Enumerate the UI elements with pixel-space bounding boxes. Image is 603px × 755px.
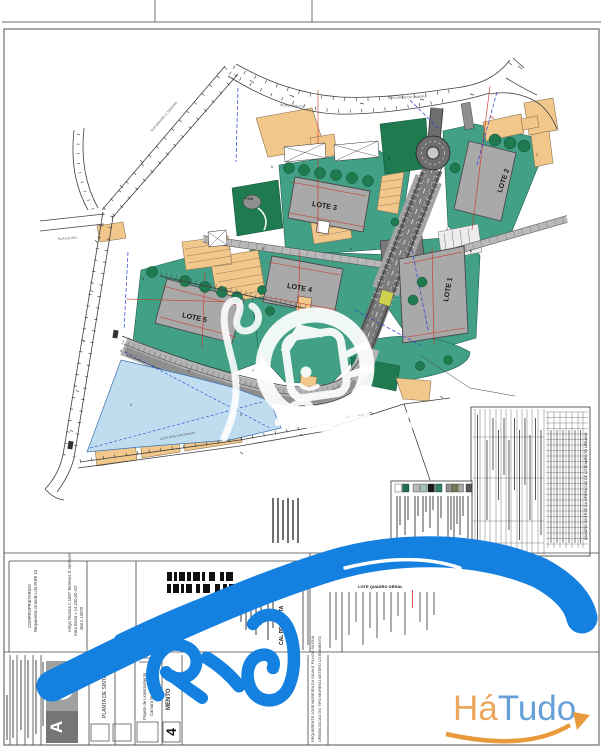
svg-text:2: 2 [130,403,132,407]
svg-text:6: 6 [188,369,190,373]
svg-text:Mat n 10970: Mat n 10970 [79,606,84,630]
svg-text:Area Bruta = 14.230,00 m2: Area Bruta = 14.230,00 m2 [73,585,78,636]
svg-text:4: 4 [120,349,122,353]
svg-text:MENTO: MENTO [166,688,172,710]
svg-text:PNB: PNB [245,196,254,201]
svg-text:8: 8 [470,249,472,253]
svg-text:5: 5 [271,165,273,169]
svg-text:7: 7 [252,369,254,373]
svg-text:3: 3 [446,227,448,231]
svg-text:2: 2 [536,153,538,157]
svg-text:4: 4 [350,247,352,251]
svg-text:COMPROPRIETARIOS: COMPROPRIETARIOS [27,584,32,628]
svg-text:LOTE QUADRO GERAL: LOTE QUADRO GERAL [358,584,403,589]
svg-text:Requerente Grande Lda PURI 10: Requerente Grande Lda PURI 10 [33,569,38,632]
svg-text:A: A [47,721,66,733]
svg-text:REQUERENTE JOSE MOREIRA DA SIL: REQUERENTE JOSE MOREIRA DA SILVA E FILHO… [311,635,315,742]
svg-text:3: 3 [388,157,390,161]
svg-text:4: 4 [163,728,179,736]
svg-text:URBANIZACAO DO TIPO MORENO ANT: URBANIZACAO DO TIPO MORENO ANTERO LOTEAM… [318,636,322,742]
svg-text:QUADRO SINTESE DA OPERACAO DE: QUADRO SINTESE DA OPERACAO DE LOTEAMENTO… [584,432,588,540]
svg-text:3: 3 [240,413,242,417]
svg-text:Artigo Rustico n 1097 Terrenos: Artigo Rustico n 1097 Terrenos S Vermoim [67,552,72,632]
svg-text:6: 6 [394,247,396,251]
svg-text:9: 9 [142,277,144,281]
svg-text:HáTudo: HáTudo [453,689,576,728]
svg-text:8: 8 [262,247,264,251]
